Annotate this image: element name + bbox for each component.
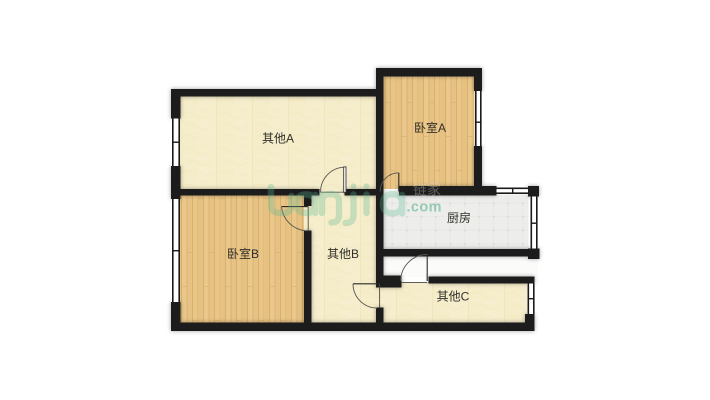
- svg-text:其他C: 其他C: [437, 290, 470, 304]
- svg-text:卧室A: 卧室A: [414, 120, 446, 135]
- svg-text:其他A: 其他A: [262, 132, 294, 146]
- svg-text:其他B: 其他B: [327, 247, 359, 261]
- svg-text:卧室B: 卧室B: [227, 246, 259, 261]
- svg-text:.com: .com: [407, 200, 442, 216]
- svg-text:厨房: 厨房: [447, 210, 471, 225]
- svg-text:链家: 链家: [413, 182, 441, 198]
